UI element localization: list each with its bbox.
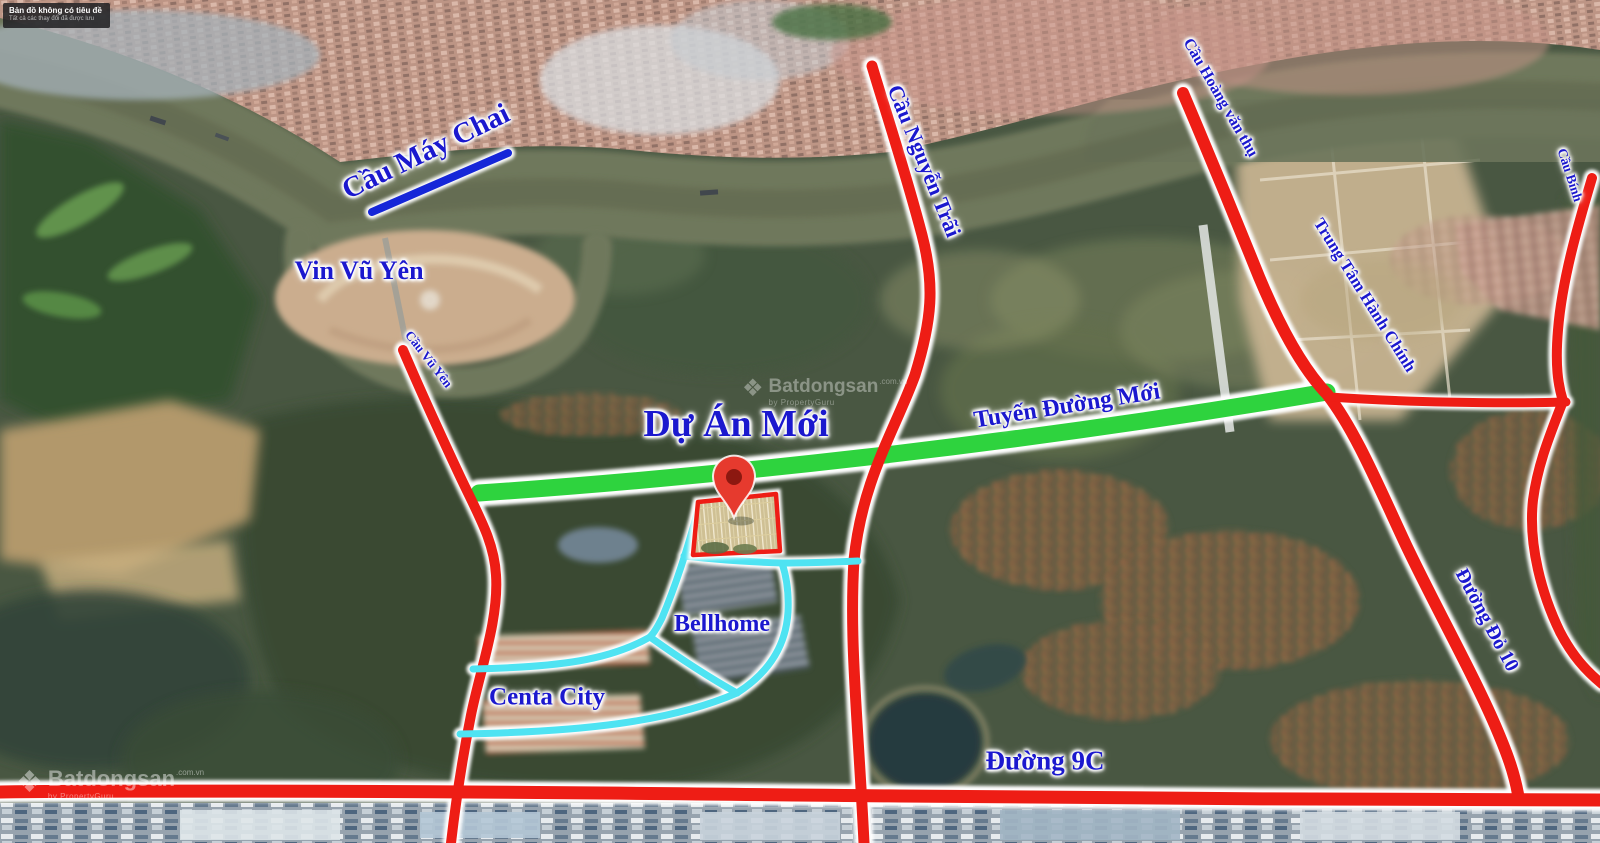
label-vin-vu-yen: Vin Vũ Yên	[294, 258, 423, 284]
map-canvas[interactable]: Cầu Máy Chai Vin Vũ Yên Cầu Vũ Yên Dự Án…	[0, 0, 1600, 843]
label-du-an-moi: Dự Án Mới	[643, 405, 828, 443]
label-duong-9c: Đường 9C	[986, 748, 1105, 775]
map-title-badge: Bản đồ không có tiêu đề Tất cả các thay …	[3, 3, 110, 28]
label-bellhome: Bellhome	[674, 612, 770, 636]
map-title: Bản đồ không có tiêu đề	[9, 6, 102, 16]
map-subtitle: Tất cả các thay đổi đã được lưu	[9, 16, 102, 24]
label-centa-city: Centa City	[489, 685, 605, 710]
